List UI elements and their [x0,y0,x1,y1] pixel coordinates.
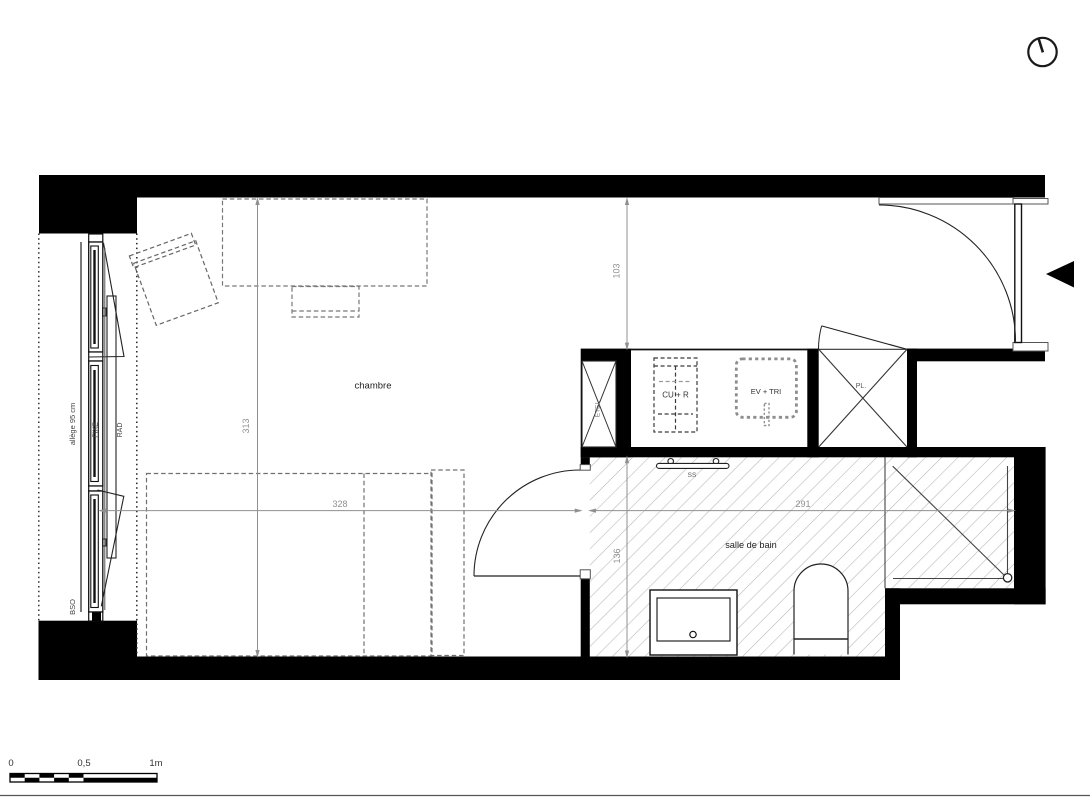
svg-text:313: 313 [241,418,251,433]
svg-text:CU + R: CU + R [662,391,689,400]
svg-text:allège 95 cm: allège 95 cm [68,403,77,446]
svg-text:0,5: 0,5 [77,758,90,769]
svg-text:PL.: PL. [856,383,867,390]
svg-text:103: 103 [612,263,622,278]
svg-text:0: 0 [8,758,13,769]
svg-text:ETEL: ETEL [595,400,602,417]
svg-text:136: 136 [612,548,622,563]
svg-text:291: 291 [795,499,810,509]
svg-text:328: 328 [332,499,347,509]
svg-text:chambre: chambre [355,381,392,392]
svg-text:BSO: BSO [68,599,77,615]
svg-text:FIXE: FIXE [93,422,100,438]
svg-text:salle de bain: salle de bain [725,540,777,550]
svg-text:SS: SS [688,472,697,479]
svg-text:RAD: RAD [117,423,124,438]
svg-text:EV + TRI: EV + TRI [751,387,782,396]
svg-text:1m: 1m [149,758,162,769]
